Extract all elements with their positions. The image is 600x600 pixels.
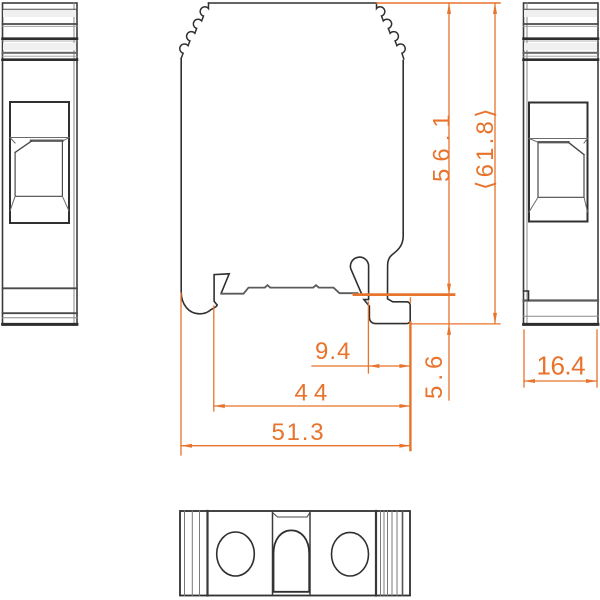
svg-text:56.1: 56.1 <box>429 107 456 182</box>
svg-text:⟨61.8⟩: ⟨61.8⟩ <box>472 105 499 190</box>
svg-text:44: 44 <box>295 380 334 407</box>
svg-text:9.4: 9.4 <box>315 338 351 365</box>
svg-text:5.6: 5.6 <box>421 351 448 399</box>
svg-text:51.3: 51.3 <box>272 419 326 446</box>
svg-text:16.4: 16.4 <box>537 351 586 381</box>
